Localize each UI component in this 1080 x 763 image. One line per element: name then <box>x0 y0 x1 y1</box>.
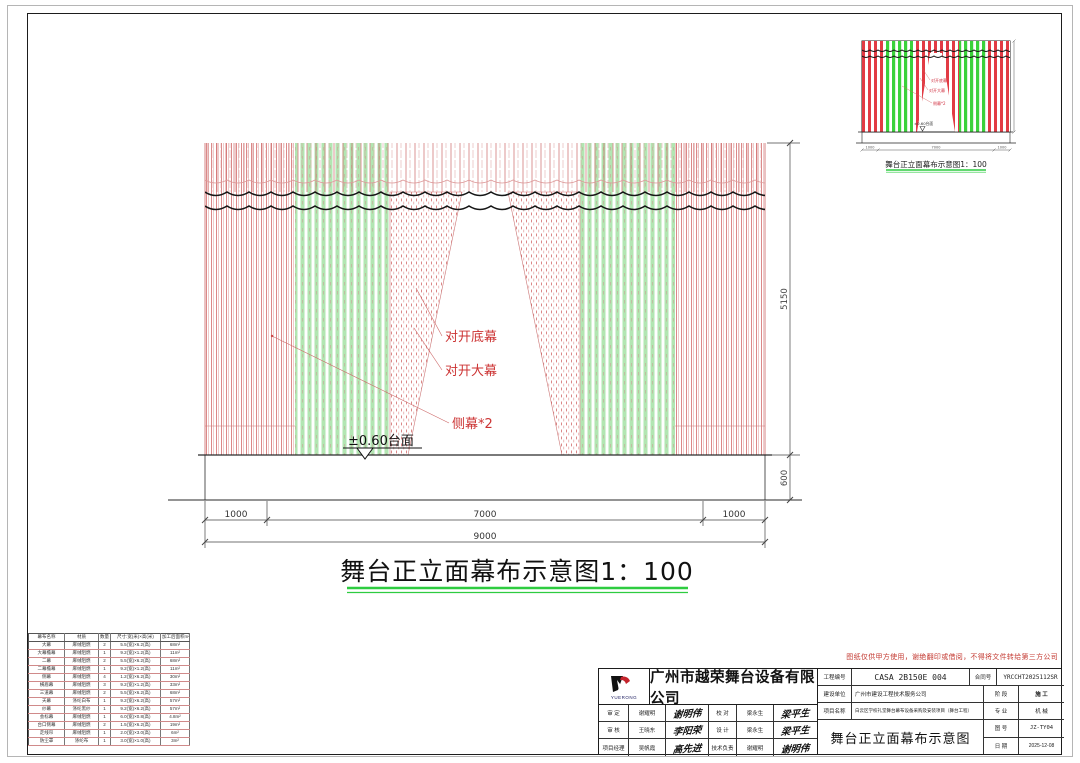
preview-dimension-text: 1000 7000 1000 <box>866 146 1007 150</box>
table-row: 三道幕麻绒阻燃25.5(宽)×6.2(高)68m² <box>29 689 190 697</box>
bottom-dimension-text: 1000 7000 1000 9000 <box>225 510 746 542</box>
color-preview-drawing: 对开底幕 对开大幕 侧幕*2 ±0.60台面 1000 7000 1000 舞台… <box>856 36 1031 178</box>
svg-text:600: 600 <box>780 470 790 486</box>
signature-row: 审 核王晓东李阳荣设 计梁永生梁平生 <box>599 722 817 739</box>
svg-text:1000: 1000 <box>723 510 746 520</box>
signature-role-label: 设 计 <box>709 722 737 738</box>
table-row: 大幕檐幕麻绒阻燃19.2(宽)×1.2(高)11m² <box>29 649 190 657</box>
drawing-no-value: JZ-TY04 <box>1019 720 1064 737</box>
svg-text:5150: 5150 <box>780 288 790 310</box>
project-no-value: CASA 2B150E 004 <box>852 669 970 685</box>
stage-label: 阶 段 <box>984 686 1019 702</box>
yuerong-logo-icon <box>607 674 641 694</box>
stage-platform <box>168 455 802 500</box>
table-row: 二幕檐幕麻绒阻燃19.2(宽)×1.2(高)11m² <box>29 665 190 673</box>
svg-text:7000: 7000 <box>932 146 941 150</box>
svg-text:舞台正立面幕布示意图1：100: 舞台正立面幕布示意图1：100 <box>340 557 694 586</box>
specialty-value: 机 械 <box>1019 703 1064 719</box>
specialty-label: 专 业 <box>984 703 1019 719</box>
svg-text:侧幕*2: 侧幕*2 <box>933 100 946 106</box>
valance-pleats <box>205 143 765 192</box>
signature-row: 项目经理吴帆霞高先进技术负责谢耀明谢明伟 <box>599 739 817 756</box>
label-bottom-curtain: 对开底幕 <box>445 329 497 345</box>
logo-text: YUERONG <box>611 695 637 700</box>
svg-text:9000: 9000 <box>474 532 497 542</box>
client-label: 建设单位 <box>818 686 852 702</box>
signature: 谢明伟 <box>774 739 817 756</box>
signature: 李阳荣 <box>666 722 709 738</box>
table-row: 台口侧幕麻绒阻燃21.5(宽)×6.2(高)19m² <box>29 721 190 729</box>
signature-role-label: 审 定 <box>599 705 629 721</box>
signature-row: 审 定谢耀明谢明伟校 对梁永生梁平生 <box>599 705 817 722</box>
table-row: 走线帘麻绒阻燃12.0(宽)×3.0(高)6m² <box>29 729 190 737</box>
svg-text:对开大幕: 对开大幕 <box>929 87 945 93</box>
label-main-curtain: 对开大幕 <box>445 364 497 379</box>
company-logo: YUERONG <box>599 669 650 704</box>
table-row: 大幕麻绒阻燃25.5(宽)×6.2(高)68m² <box>29 641 190 649</box>
table-row: 天幕涤纶白布19.2(宽)×6.2(高)57m² <box>29 697 190 705</box>
title-block-drawing-title: 舞台正立面幕布示意图 <box>818 720 984 754</box>
svg-text:1000: 1000 <box>225 510 248 520</box>
label-side-curtain: 侧幕*2 <box>452 417 493 432</box>
signature: 高先进 <box>666 739 709 756</box>
curtain-parts-table: 幕布名称材质数量尺寸:宽(米)×高(米)加工后面积m² 大幕麻绒阻燃25.5(宽… <box>28 633 190 746</box>
svg-text:1000: 1000 <box>866 146 875 150</box>
signature-grid: 审 定谢耀明谢明伟校 对梁永生梁平生审 核王晓东李阳荣设 计梁永生梁平生项目经理… <box>599 705 817 756</box>
signature-name: 谢耀明 <box>737 739 774 756</box>
signature-role-label: 校 对 <box>709 705 737 721</box>
right-dimension <box>767 140 800 503</box>
signature: 梁平生 <box>774 722 817 738</box>
contract-no-value: YRCCHT2025112SR <box>997 669 1064 685</box>
signature: 梁平生 <box>774 705 817 721</box>
contract-no-label: 合同号 <box>970 669 997 685</box>
signature: 谢明伟 <box>666 705 709 721</box>
main-elevation-drawing: ±0.60台面 对开底幕 对开大幕 侧幕*2 1000 7000 1000 90… <box>160 128 840 608</box>
table-row: 防尘罩涤纶布13.0(宽)×1.0(高)3m² <box>29 737 190 745</box>
project-name-value: 白云区学校礼堂舞台幕布设备采购及安装项目（舞台工程） <box>852 703 984 719</box>
table-row: 侧幕麻绒阻燃41.2(宽)×6.2(高)30m² <box>29 673 190 681</box>
client-value: 广州市建设工程技术服务公司 <box>852 686 984 702</box>
preview-caption: 舞台正立面幕布示意图1：100 <box>885 159 987 172</box>
copyright-disclaimer: 图纸仅供甲方使用，谢绝翻印或借阅，不得将文件转给第三方公司 <box>846 652 1058 662</box>
signature-role-label: 技术负责 <box>709 739 737 756</box>
drawing-title: 舞台正立面幕布示意图1：100 <box>340 557 694 593</box>
signature-name: 王晓东 <box>629 722 666 738</box>
preview-stage <box>856 132 1016 143</box>
table-row: 会标幕麻绒阻燃16.0(宽)×0.8(高)4.8m² <box>29 713 190 721</box>
signature-name: 吴帆霞 <box>629 739 666 756</box>
signature-name: 梁永生 <box>737 722 774 738</box>
company-name: 广州市越荣舞台设备有限公司 <box>650 669 817 704</box>
table-row: 纱幕涤纶黑纱19.2(宽)×6.2(高)57m² <box>29 705 190 713</box>
stage-value: 施 工 <box>1019 686 1064 702</box>
parts-table-body: 大幕麻绒阻燃25.5(宽)×6.2(高)68m²大幕檐幕麻绒阻燃19.2(宽)×… <box>29 641 190 745</box>
parts-table-header-row: 幕布名称材质数量尺寸:宽(米)×高(米)加工后面积m² <box>29 634 190 642</box>
main-curtain-legs <box>390 192 580 455</box>
svg-text:±0.60台面: ±0.60台面 <box>348 434 414 449</box>
svg-text:7000: 7000 <box>474 510 497 520</box>
table-row: 二幕麻绒阻燃25.5(宽)×6.2(高)68m² <box>29 657 190 665</box>
table-row: 横眉幕麻绒阻燃39.2(宽)×1.2(高)33m² <box>29 681 190 689</box>
svg-text:1000: 1000 <box>998 146 1007 150</box>
date-value: 2025-12-08 <box>1019 738 1064 755</box>
signature-name: 梁永生 <box>737 705 774 721</box>
project-no-label: 工程编号 <box>818 669 852 685</box>
svg-text:±0.60台面: ±0.60台面 <box>914 121 933 126</box>
svg-text:对开底幕: 对开底幕 <box>931 77 947 83</box>
signature-name: 谢耀明 <box>629 705 666 721</box>
drawing-no-label: 图 号 <box>984 720 1019 737</box>
project-name-label: 项目名称 <box>818 703 852 719</box>
title-block: YUERONG 广州市越荣舞台设备有限公司 审 定谢耀明谢明伟校 对梁永生梁平生… <box>598 668 1062 755</box>
signature-role-label: 审 核 <box>599 722 629 738</box>
date-label: 日 期 <box>984 738 1019 755</box>
signature-role-label: 项目经理 <box>599 739 629 756</box>
drawing-sheet: { "main_drawing": { "title": "舞台正立面幕布示意图… <box>0 0 1080 763</box>
svg-text:舞台正立面幕布示意图1：100: 舞台正立面幕布示意图1：100 <box>885 159 987 169</box>
